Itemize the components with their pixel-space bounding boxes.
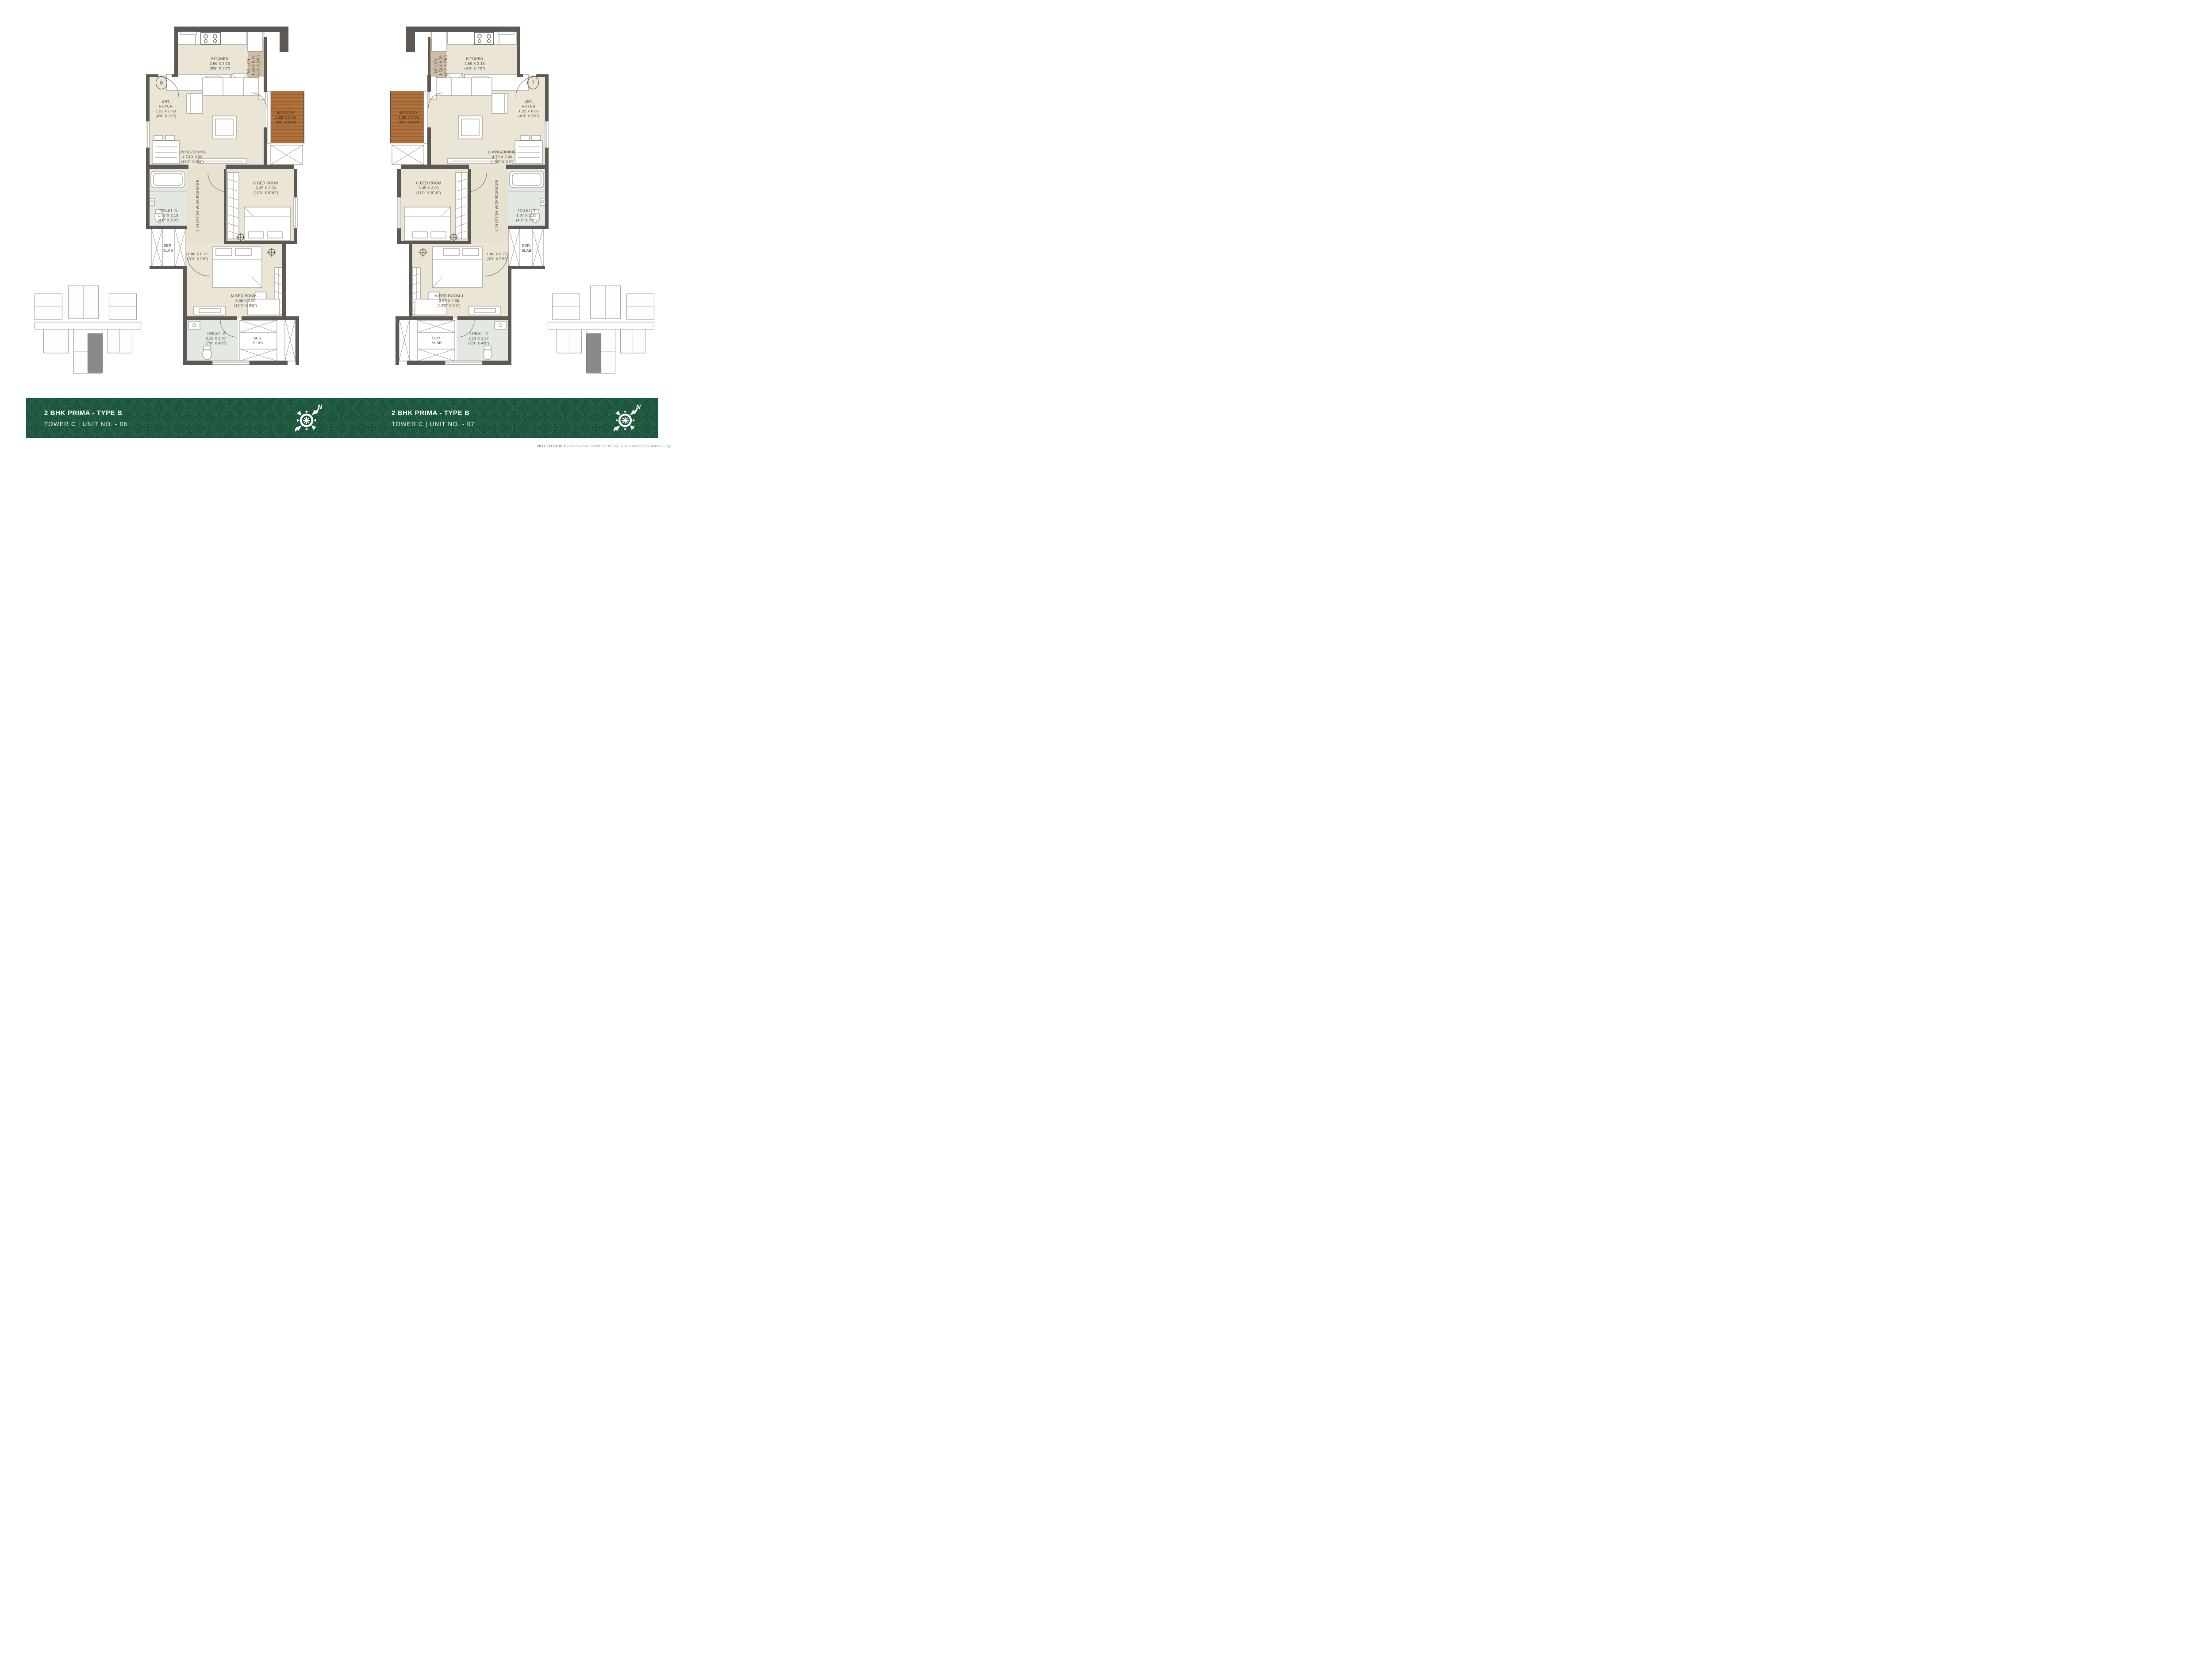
passage-label: 1.00 (3'3")M.WIDE PASSAGE — [195, 180, 200, 232]
unit-number: 7 — [532, 80, 535, 86]
toilet-2-label: TOILET -22.13 X 1.37(7'0" X 4'6") — [206, 331, 227, 346]
living-dining-label: LIVING/DINING4.73 X 2.90(15'6" X 9'6") — [179, 150, 207, 164]
balcony-label: BALCONY1.05 X 1.95(3'5" X 6'5") — [276, 110, 296, 125]
floor-plan-sheet: 6 KITCHEN2.59 X 2.13(8'6" X 7'0") UTILIT… — [0, 0, 684, 456]
kitchen-label: KITCHEN2.59 X 2.13(8'6" X 7'0") — [210, 56, 230, 71]
unit-07-plan-graphics — [388, 27, 549, 365]
utility-label: UTILITY1.53 X 0.76(5'0" X 2'6") — [246, 55, 261, 76]
plan-title: 2 BHK PRIMA - TYPE B — [44, 409, 127, 417]
unit-number: 6 — [160, 80, 163, 86]
footer-panel-unit-06: 2 BHK PRIMA - TYPE B TOWER C | UNIT NO. … — [44, 398, 127, 438]
ent-foyer-label: ENT.FOYER1.22 X 0.60(4'0" X 2'0") — [156, 99, 177, 119]
toilet-2-label: TOILET -22.13 X 1.37(7'0" X 4'6") — [469, 331, 489, 346]
c-bed-room-label: C.BED ROOM3.35 X 3.00(11'0" X 9'10") — [416, 181, 442, 195]
niche-dim-label: 1.00 X 0.77(3'3" X 2'6") — [487, 252, 507, 261]
living-dining-label: LIVING/DINING4.73 X 2.90(15'6" X 9'6") — [488, 150, 516, 164]
passage-label: 1.00 (3'3")M.WIDE PASSAGE — [494, 180, 499, 232]
footer-band: 2 BHK PRIMA - TYPE B TOWER C | UNIT NO. … — [26, 398, 658, 438]
balcony-label: BALCONY1.05 X 1.95(3'5" X 6'5") — [399, 110, 419, 125]
c-bed-room-label: C.BED ROOM3.35 X 3.00(11'0" X 9'10") — [253, 181, 279, 195]
disclaimer-rest: Disclaimer: CONFIDENTIAL. For Internal C… — [568, 444, 672, 448]
unit-07-floor-plan: 7 KITCHEN2.59 X 2.13(8'6" X 7'0") UTILIT… — [388, 27, 549, 365]
utility-label: UTILITY1.53 X 0.76(5'0" X 2'6") — [434, 55, 448, 76]
key-plan-left — [29, 281, 146, 375]
ser-slab-2-label: SER.SLAB — [253, 336, 263, 346]
toilet-1-label: TOILET -11.37 X 2.13(4'6" X 7'0") — [516, 208, 537, 223]
disclaimer-text: NOT TO SCALE | Disclaimer: CONFIDENTIAL.… — [538, 444, 672, 448]
unit-06-floor-plan: 6 KITCHEN2.59 X 2.13(8'6" X 7'0") UTILIT… — [146, 27, 306, 365]
ent-foyer-label: ENT.FOYER1.22 X 0.60(4'0" X 2'0") — [518, 99, 539, 119]
ser-slab-2-label: SER.SLAB — [432, 336, 442, 346]
footer-panel-unit-07: 2 BHK PRIMA - TYPE B TOWER C | UNIT NO. … — [392, 398, 475, 438]
plan-title: 2 BHK PRIMA - TYPE B — [392, 409, 475, 417]
unit-number-badge: 6 — [156, 76, 167, 89]
north-label: N — [636, 403, 641, 410]
toilet-1-label: TOILET -11.37 X 2.13(4'6" X 7'0") — [158, 208, 179, 223]
compass-icon: N — [295, 403, 327, 434]
plan-subtitle: TOWER C | UNIT NO. - 06 — [44, 421, 127, 427]
unit-number-badge: 7 — [527, 76, 539, 89]
m-bed-room-label: M.BED ROOM-13.65 X 2.90(12'0" X 9'6") — [231, 293, 260, 308]
north-label: N — [318, 403, 323, 410]
compass-icon: N — [614, 403, 645, 434]
key-plan-right — [542, 281, 660, 375]
m-bed-room-label: M.BED ROOM-13.65 X 2.90(12'0" X 9'6") — [434, 293, 464, 308]
ser-slab-1-label: SER.SLAB — [522, 243, 532, 253]
kitchen-label: KITCHEN2.59 X 2.13(8'6" X 7'0") — [465, 56, 485, 71]
ser-slab-1-label: SER.SLAB — [163, 243, 173, 253]
niche-dim-label: 1.00 X 0.77(3'3" X 2'6") — [188, 252, 208, 261]
unit-06-plan-graphics — [146, 27, 306, 365]
plan-subtitle: TOWER C | UNIT NO. - 07 — [392, 421, 475, 427]
disclaimer-bold: NOT TO SCALE | — [538, 444, 569, 448]
